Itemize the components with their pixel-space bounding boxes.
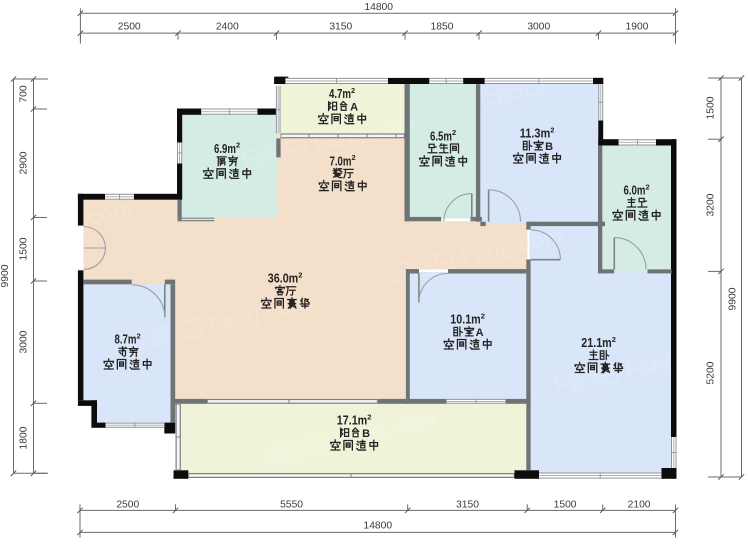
svg-text:1900: 1900 [626,22,649,33]
svg-text:1800: 1800 [19,426,30,449]
svg-text:2: 2 [481,311,485,320]
svg-text:2500: 2500 [116,499,139,510]
svg-text:21.1m: 21.1m [581,335,612,350]
svg-text:1850: 1850 [431,22,454,33]
svg-text:2900: 2900 [19,151,30,174]
svg-text:2: 2 [351,86,355,95]
svg-text:2: 2 [236,141,240,150]
svg-text:2: 2 [298,270,302,279]
svg-text:2: 2 [452,128,456,137]
svg-text:2: 2 [646,182,650,191]
svg-text:B: B [545,141,553,153]
svg-text:1500: 1500 [19,237,30,260]
svg-text:10.1m: 10.1m [450,312,481,327]
svg-text:2: 2 [137,331,141,340]
svg-text:3000: 3000 [527,22,550,33]
svg-text:14800: 14800 [363,520,392,531]
svg-text:1500: 1500 [554,499,577,510]
svg-text:2: 2 [550,125,554,134]
svg-text:2: 2 [612,335,616,344]
svg-text:2500: 2500 [118,22,141,33]
svg-text:3150: 3150 [329,22,352,33]
svg-text:A: A [350,101,358,113]
svg-text:17.1m: 17.1m [337,413,368,428]
svg-text:B: B [362,428,370,440]
svg-text:2100: 2100 [628,499,651,510]
svg-text:11.3m: 11.3m [520,126,551,141]
svg-text:700: 700 [19,85,30,102]
svg-text:8.7m: 8.7m [115,332,137,347]
svg-text:A: A [476,327,484,339]
svg-text:2400: 2400 [216,22,239,33]
svg-text:3150: 3150 [456,499,479,510]
svg-text:6.0m: 6.0m [624,183,646,198]
svg-text:2: 2 [352,153,356,162]
svg-text:7.0m: 7.0m [330,153,352,168]
svg-text:36.0m: 36.0m [268,271,299,286]
svg-text:4.7m: 4.7m [329,86,351,101]
svg-text:14800: 14800 [364,2,393,13]
svg-text:3000: 3000 [19,330,30,353]
svg-text:5200: 5200 [706,361,717,384]
svg-text:9900: 9900 [0,264,11,287]
svg-text:1500: 1500 [706,96,717,119]
svg-text:6.9m: 6.9m [214,141,236,156]
svg-text:6.5m: 6.5m [430,129,452,144]
svg-text:3200: 3200 [706,193,717,216]
svg-text:9900: 9900 [728,287,739,310]
svg-text:5550: 5550 [280,499,303,510]
svg-text:2: 2 [367,412,371,421]
